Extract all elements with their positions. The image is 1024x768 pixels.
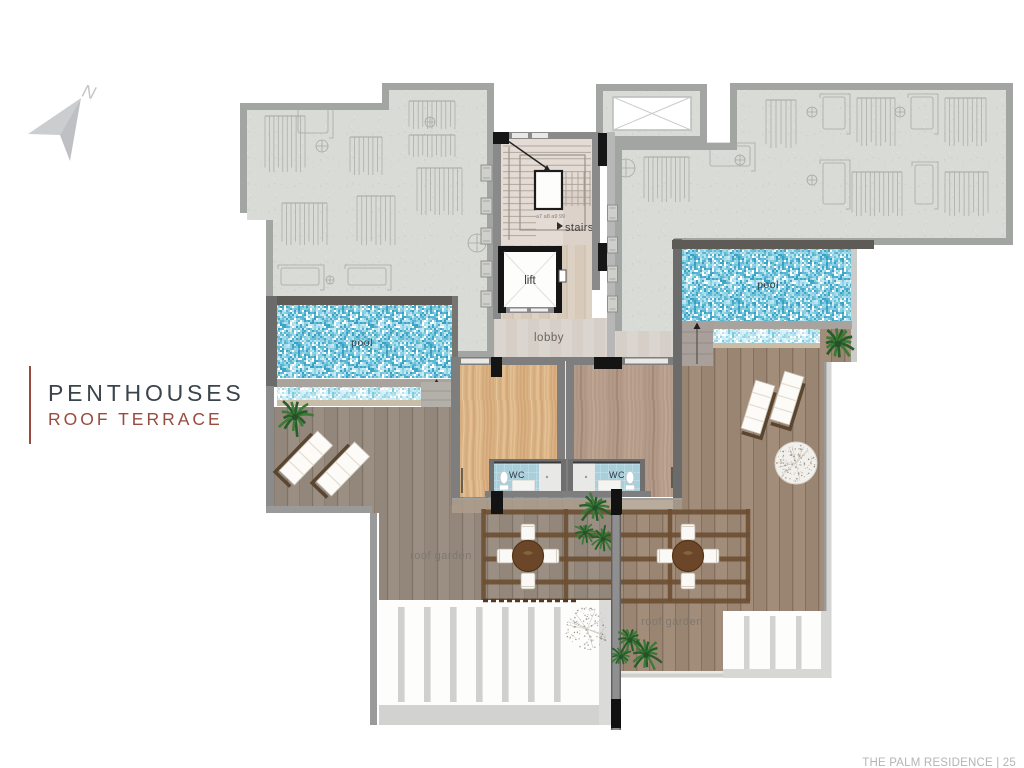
svg-text:lobby: lobby	[534, 332, 564, 344]
svg-text:roof garden: roof garden	[641, 616, 703, 628]
svg-text:WC: WC	[509, 470, 525, 480]
svg-text:lift: lift	[524, 275, 536, 287]
svg-text:a7 a8 a9 99: a7 a8 a9 99	[536, 214, 565, 220]
svg-text:WC: WC	[609, 470, 625, 480]
svg-text:THE PALM RESIDENCE | 25: THE PALM RESIDENCE | 25	[862, 757, 1016, 768]
svg-text:N: N	[80, 81, 99, 104]
svg-text:ROOF TERRACE: ROOF TERRACE	[48, 409, 223, 429]
svg-text:pool: pool	[351, 337, 373, 349]
svg-text:roof garden: roof garden	[410, 550, 472, 562]
svg-text:pool: pool	[757, 279, 779, 291]
svg-text:stairs: stairs	[565, 222, 594, 234]
svg-text:PENTHOUSES: PENTHOUSES	[48, 380, 244, 406]
